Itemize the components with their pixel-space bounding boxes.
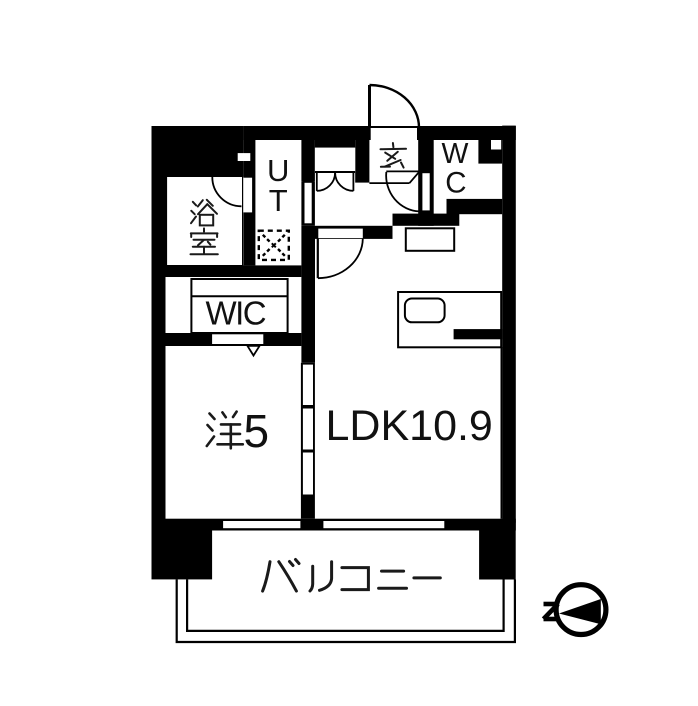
svg-text:W: W bbox=[442, 138, 469, 170]
svg-text:WIC: WIC bbox=[205, 295, 265, 332]
svg-text:T: T bbox=[269, 183, 288, 218]
svg-text:LDK10.9: LDK10.9 bbox=[326, 402, 493, 450]
svg-text:C: C bbox=[445, 166, 466, 199]
svg-text:5: 5 bbox=[244, 405, 270, 457]
